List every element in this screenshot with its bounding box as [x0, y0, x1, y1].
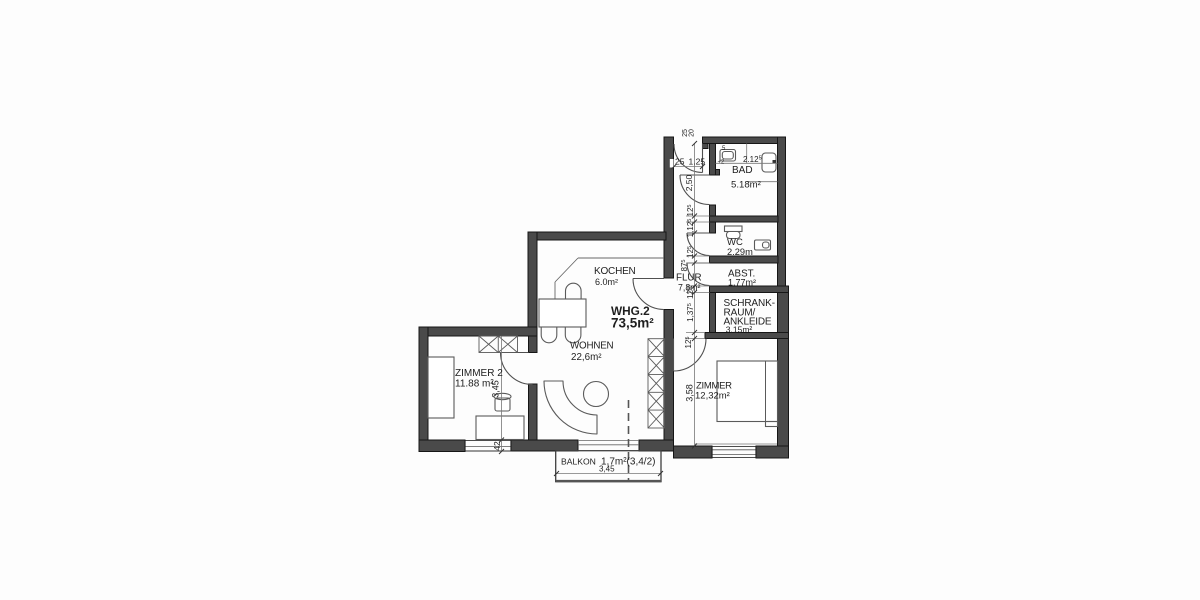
svg-text:BALKON: BALKON: [561, 457, 596, 467]
svg-text:2,50: 2,50: [684, 174, 694, 191]
svg-text:1.25: 1.25: [689, 157, 706, 167]
svg-text:25: 25: [675, 157, 685, 167]
svg-text:KOCHEN: KOCHEN: [594, 266, 636, 277]
svg-text:3,45: 3,45: [491, 380, 501, 398]
svg-text:+2: +2: [718, 160, 726, 166]
svg-text:20: 20: [689, 129, 696, 137]
svg-text:ZIMMER 2: ZIMMER 2: [455, 368, 503, 379]
svg-text:11.88 m²: 11.88 m²: [455, 379, 494, 390]
svg-text:73,5m²: 73,5m²: [611, 316, 654, 331]
svg-text:WOHNEN: WOHNEN: [570, 341, 614, 352]
svg-text:1,77m²: 1,77m²: [728, 278, 756, 288]
svg-text:12,32m²: 12,32m²: [695, 391, 730, 402]
svg-text:3,45: 3,45: [599, 465, 615, 474]
svg-text:3.15m²: 3.15m²: [726, 324, 753, 334]
svg-text:22,6m²: 22,6m²: [571, 352, 602, 363]
svg-text:3,58: 3,58: [685, 384, 695, 402]
svg-text:BAD: BAD: [732, 165, 753, 176]
svg-text:2.29m: 2.29m: [727, 247, 753, 257]
svg-text:6.0m²: 6.0m²: [595, 277, 618, 287]
svg-text:42: 42: [492, 441, 502, 451]
svg-text:5.18m²: 5.18m²: [731, 180, 762, 191]
